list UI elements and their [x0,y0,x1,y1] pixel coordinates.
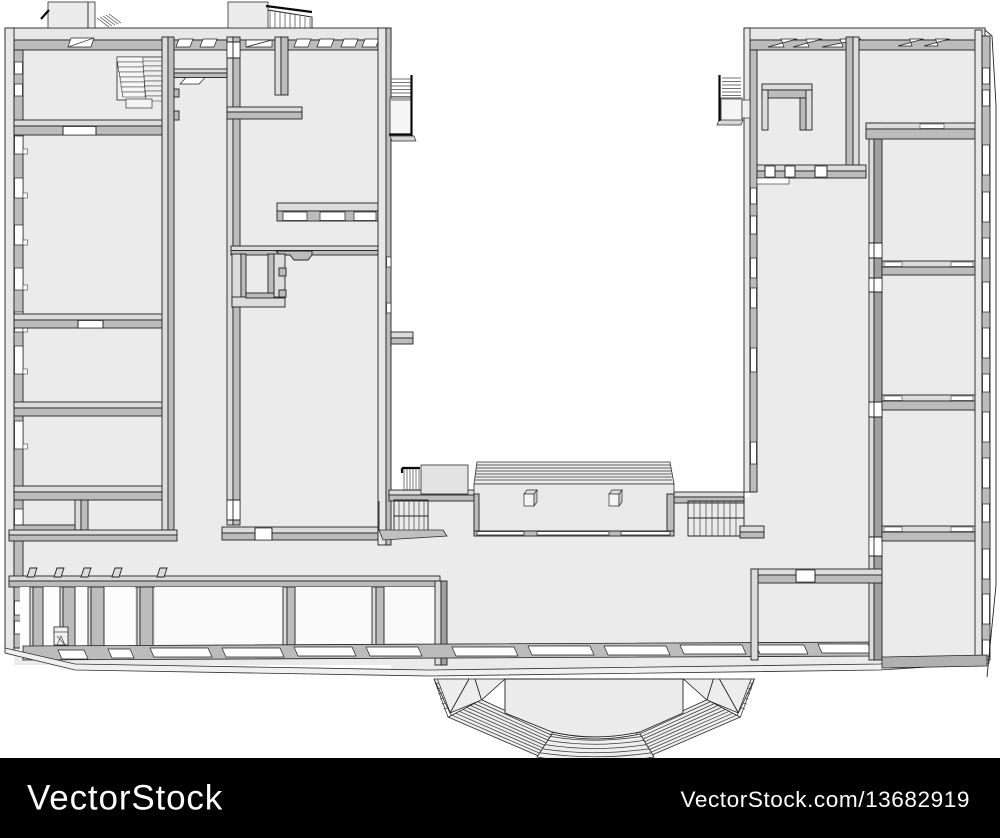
svg-text:VectorStock.com/13682919: VectorStock.com/13682919 [680,787,970,812]
svg-text:VectorStock: VectorStock [27,779,223,818]
